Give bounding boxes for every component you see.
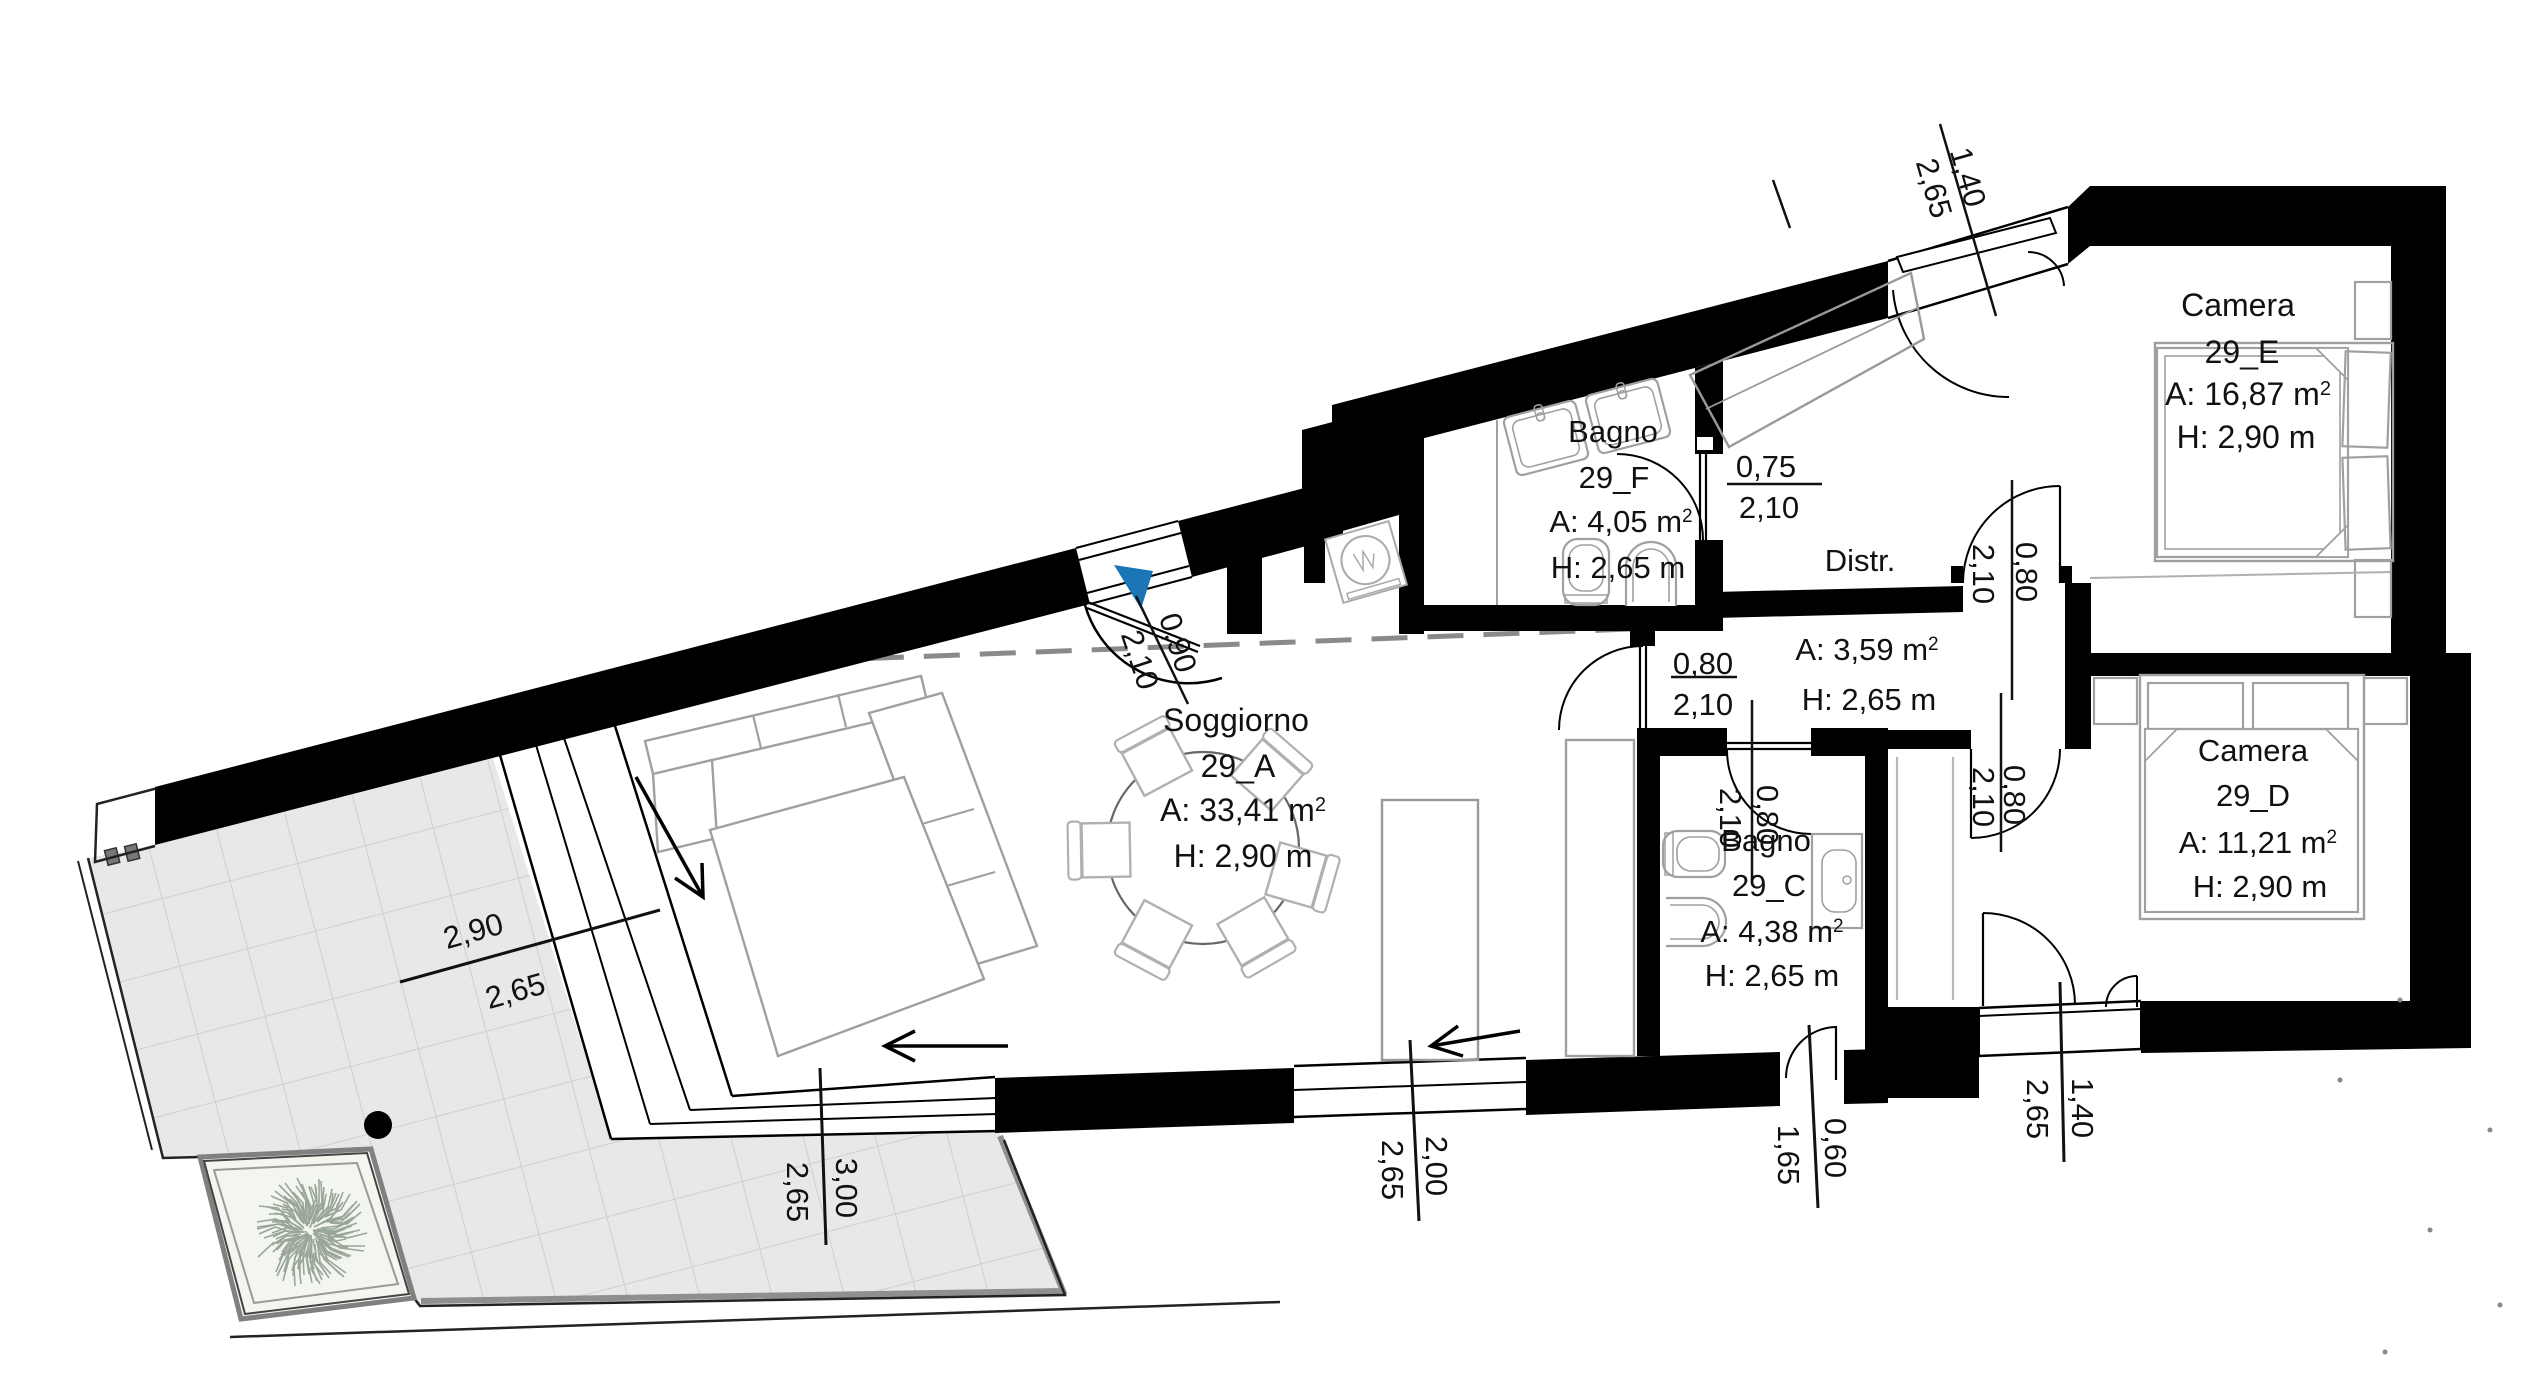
svg-text:H: 2,90 m: H: 2,90 m <box>1174 838 1313 874</box>
svg-text:Bagno: Bagno <box>1568 414 1658 449</box>
svg-text:3,00: 3,00 <box>829 1158 864 1218</box>
svg-text:H: 2,90 m: H: 2,90 m <box>2193 869 2327 904</box>
svg-text:29_D: 29_D <box>2216 778 2290 813</box>
svg-text:0,60: 0,60 <box>1818 1118 1853 1178</box>
svg-text:Distr.: Distr. <box>1825 543 1896 578</box>
svg-text:2,10: 2,10 <box>1966 767 2001 827</box>
svg-text:H: 2,65 m: H: 2,65 m <box>1802 682 1936 717</box>
svg-text:Bagno: Bagno <box>1721 823 1811 858</box>
svg-text:Soggiorno: Soggiorno <box>1163 702 1309 738</box>
svg-text:2,10: 2,10 <box>1673 687 1733 722</box>
svg-text:2,00: 2,00 <box>1419 1136 1454 1196</box>
svg-text:1,40: 1,40 <box>2065 1078 2100 1138</box>
svg-text:29_F: 29_F <box>1579 460 1650 495</box>
svg-text:H: 2,65 m: H: 2,65 m <box>1705 958 1839 993</box>
svg-text:Camera: Camera <box>2198 733 2309 768</box>
svg-text:0,75: 0,75 <box>1736 449 1796 484</box>
svg-text:1,65: 1,65 <box>1771 1125 1806 1185</box>
svg-text:H: 2,65 m: H: 2,65 m <box>1551 550 1685 585</box>
svg-text:A: 3,59 m2: A: 3,59 m2 <box>1795 632 1938 667</box>
svg-text:2,65: 2,65 <box>1375 1140 1410 1200</box>
svg-text:2,65: 2,65 <box>780 1162 815 1222</box>
svg-text:0,80: 0,80 <box>1997 765 2032 825</box>
svg-text:29_C: 29_C <box>1732 868 1806 903</box>
svg-text:2,65: 2,65 <box>2020 1079 2055 1139</box>
svg-text:0,80: 0,80 <box>2009 542 2044 602</box>
svg-text:A: 33,41 m2: A: 33,41 m2 <box>1160 792 1326 828</box>
svg-text:29_A: 29_A <box>1201 748 1276 784</box>
svg-text:A: 4,38 m2: A: 4,38 m2 <box>1700 914 1843 949</box>
svg-text:A: 11,21 m2: A: 11,21 m2 <box>2179 825 2337 860</box>
svg-text:2,10: 2,10 <box>1739 490 1799 525</box>
svg-text:Camera: Camera <box>2181 287 2295 323</box>
svg-text:A: 16,87 m2: A: 16,87 m2 <box>2165 376 2331 412</box>
svg-text:A: 4,05 m2: A: 4,05 m2 <box>1549 504 1692 539</box>
svg-text:29_E: 29_E <box>2205 334 2280 370</box>
svg-text:H: 2,90 m: H: 2,90 m <box>2177 419 2316 455</box>
svg-text:2,10: 2,10 <box>1966 544 2001 604</box>
svg-text:0,80: 0,80 <box>1673 646 1733 681</box>
